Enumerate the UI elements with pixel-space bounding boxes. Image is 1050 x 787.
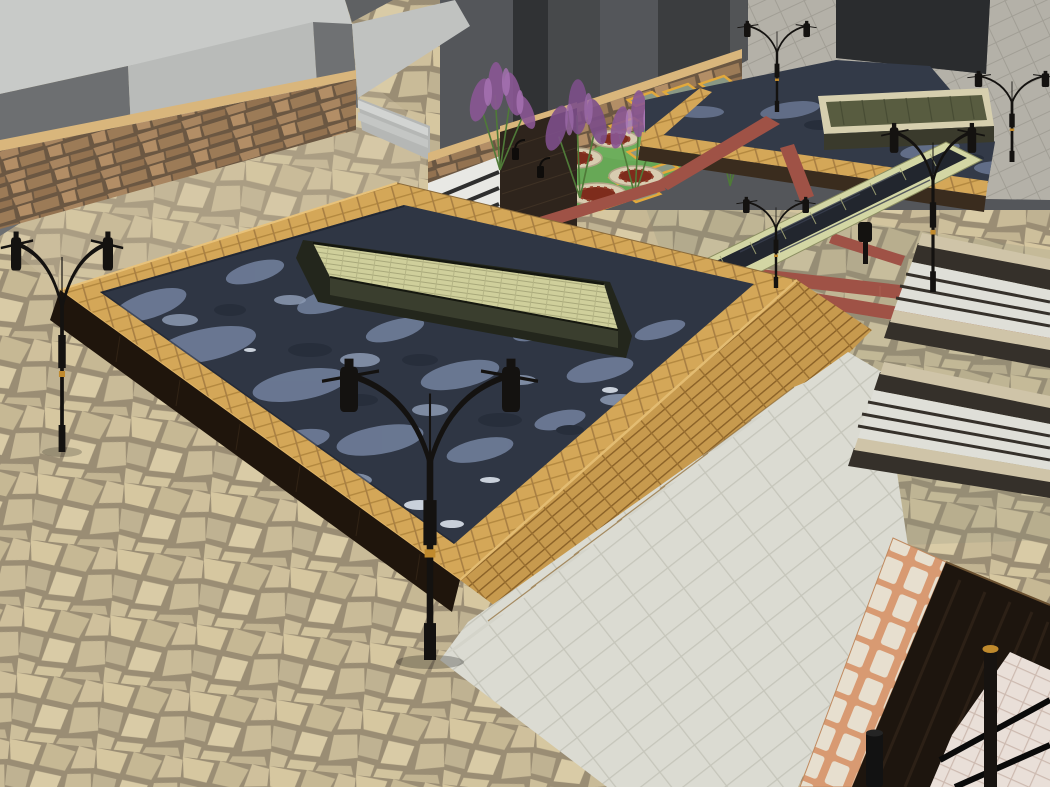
render-viewport xyxy=(0,0,1050,787)
bollard xyxy=(866,730,883,787)
scene-canvas xyxy=(0,0,1050,787)
